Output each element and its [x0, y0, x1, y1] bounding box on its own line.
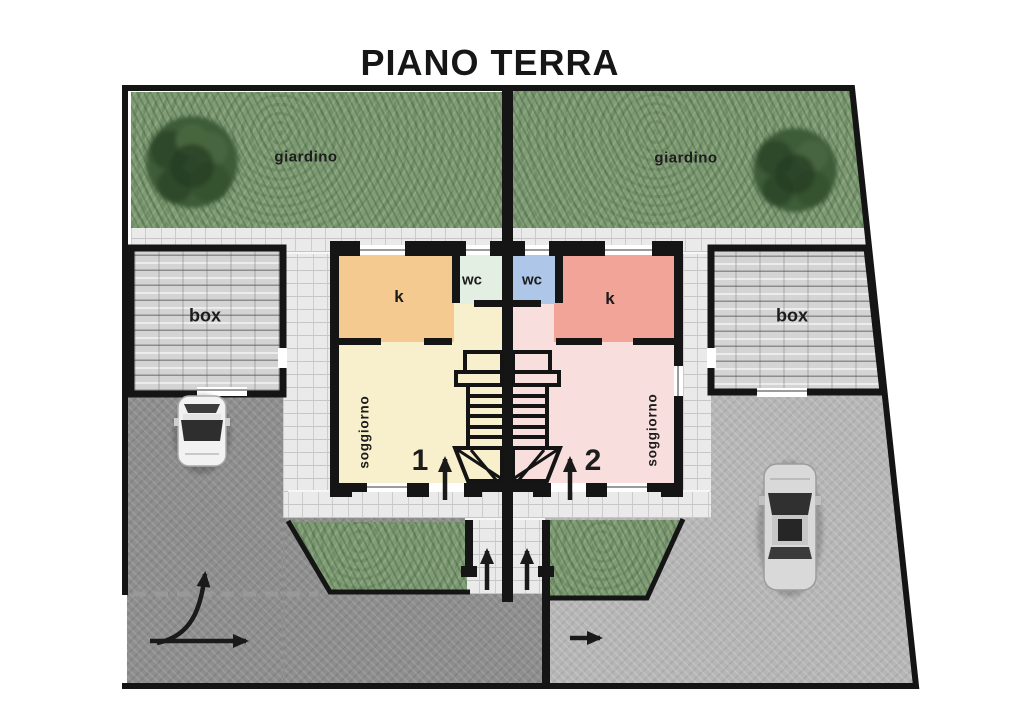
garden-right-label: giardino [654, 150, 717, 167]
paved-strip-left [283, 252, 330, 518]
unit2-number: 2 [585, 444, 602, 478]
kitchen-unit1-label: k [394, 287, 403, 307]
wc-unit1-label: wc [462, 272, 482, 289]
living-unit1-label: soggiorno [357, 395, 372, 468]
garage-right-label: box [776, 306, 808, 327]
kitchen-unit2-label: k [605, 289, 614, 309]
paved-band-bottom [288, 490, 710, 518]
entrance-walkway [465, 518, 545, 594]
garage-left-label: box [189, 306, 221, 327]
living-unit2-label: soggiorno [645, 393, 660, 466]
wc-unit2-label: wc [522, 272, 542, 289]
garden-left-label: giardino [274, 149, 337, 166]
unit1-number: 1 [412, 444, 429, 478]
page-title: PIANO TERRA [0, 42, 980, 84]
floor-plan: PIANO TERRA [0, 0, 1024, 727]
paved-strip-right [683, 252, 711, 518]
kitchen-unit2 [554, 252, 677, 342]
driveway-left [127, 393, 285, 686]
